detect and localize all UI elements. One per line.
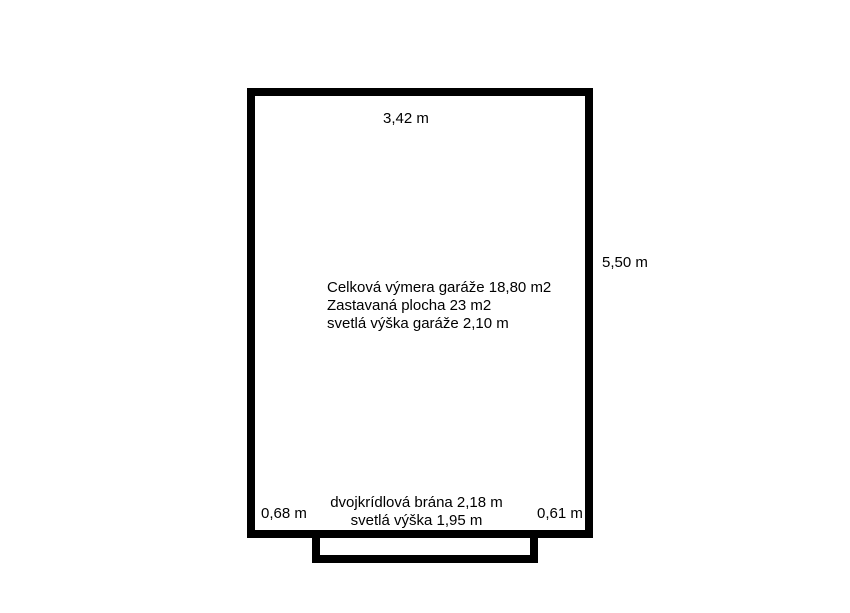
garage-info-text: Celková výmera garáže 18,80 m2 Zastavaná… [327,279,551,333]
info-line-clear-height: svetlá výška garáže 2,10 m [327,315,551,333]
gate-label-line1: dvojkrídlová brána 2,18 m [283,494,550,512]
info-line-total-area: Celková výmera garáže 18,80 m2 [327,279,551,297]
right-height-label: 5,50 m [602,254,648,271]
gate-outline [312,538,538,563]
gate-label: dvojkrídlová brána 2,18 m svetlá výška 1… [283,494,550,530]
top-width-label: 3,42 m [383,110,429,127]
gate-label-line2: svetlá výška 1,95 m [283,512,550,530]
right-offset-label: 0,61 m [537,505,583,522]
info-line-built-area: Zastavaná plocha 23 m2 [327,297,551,315]
floorplan-canvas: 3,42 m 5,50 m Celková výmera garáže 18,8… [0,0,850,613]
left-offset-label: 0,68 m [261,505,307,522]
